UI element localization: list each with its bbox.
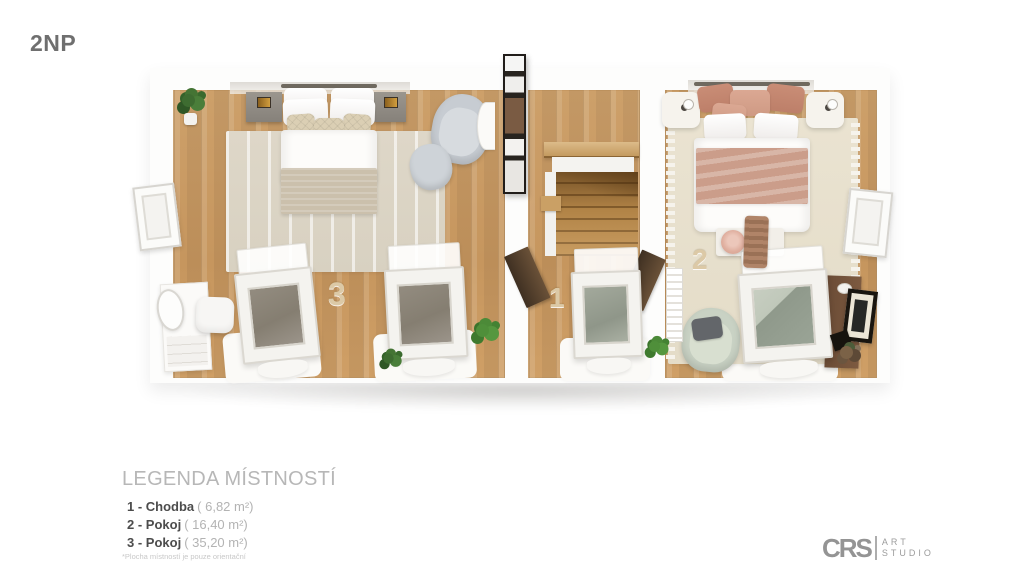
room-number-3: 3 bbox=[328, 276, 346, 313]
legend-item-area: ( 6,82 m²) bbox=[197, 499, 253, 514]
floorplan-slide: { "page": { "floor_label": "2NP" }, "flo… bbox=[0, 0, 1024, 576]
lamp-icon bbox=[827, 99, 838, 110]
lamp-icon bbox=[257, 97, 271, 108]
window-frame bbox=[571, 269, 644, 358]
legend-item-label: 1 - Chodba bbox=[127, 499, 194, 514]
legend-item: 3 - Pokoj( 35,20 m²) bbox=[127, 534, 336, 552]
plant bbox=[476, 324, 489, 337]
window-sill bbox=[586, 357, 631, 375]
legend-item-label: 2 - Pokoj bbox=[127, 517, 181, 532]
stair-winder bbox=[556, 172, 638, 197]
radiator bbox=[666, 268, 683, 342]
room-number-1: 1 bbox=[549, 282, 565, 314]
nightstand-right-room3 bbox=[374, 92, 406, 122]
logo-divider bbox=[875, 536, 877, 560]
legend-footnote: *Plocha místností je pouze orientační bbox=[122, 552, 246, 561]
double-bed-room3 bbox=[281, 84, 377, 216]
dried-plant bbox=[840, 346, 853, 359]
window-frame bbox=[737, 268, 833, 364]
lamp-icon bbox=[683, 99, 694, 110]
studio-logo: CRS ART STUDIO bbox=[822, 535, 934, 561]
plant-leaves-icon bbox=[840, 346, 853, 359]
gable-window-right bbox=[843, 188, 894, 258]
desk-drawers bbox=[166, 335, 208, 366]
legend-item-area: ( 35,20 m²) bbox=[184, 535, 248, 550]
pillow bbox=[703, 113, 746, 141]
window-glass bbox=[247, 282, 306, 349]
plant bbox=[648, 340, 661, 353]
stair-stringer bbox=[545, 172, 556, 256]
plant-pot bbox=[184, 113, 197, 125]
stair-landing-wall bbox=[552, 157, 634, 172]
legend-title: LEGENDA MÍSTNOSTÍ bbox=[122, 468, 336, 491]
window-frame bbox=[384, 266, 469, 361]
page-title: 2NP bbox=[30, 30, 76, 57]
legend-items: 1 - Chodba( 6,82 m²) 2 - Pokoj( 16,40 m²… bbox=[122, 498, 336, 552]
double-bed-room2 bbox=[694, 82, 810, 232]
roof-window bbox=[383, 242, 470, 378]
roof-window bbox=[570, 247, 644, 375]
legend-item: 2 - Pokoj( 16,40 m²) bbox=[127, 516, 336, 534]
plan-drop-shadow bbox=[168, 384, 872, 412]
lamp-icon bbox=[384, 97, 398, 108]
plant-leaves-icon bbox=[649, 341, 660, 352]
legend-item-label: 3 - Pokoj bbox=[127, 535, 181, 550]
legend-item-area: ( 16,40 m²) bbox=[184, 517, 248, 532]
window-sill bbox=[403, 357, 455, 377]
logo-name: ART STUDIO bbox=[882, 537, 934, 559]
window-glass bbox=[751, 284, 816, 349]
window-glass bbox=[396, 281, 453, 346]
blanket bbox=[281, 168, 377, 214]
throw-blanket bbox=[743, 216, 769, 269]
blanket bbox=[696, 148, 808, 204]
plant bbox=[182, 94, 195, 119]
stair-handrail bbox=[544, 142, 639, 158]
plant-leaves-icon bbox=[383, 353, 393, 363]
wall-console bbox=[477, 102, 495, 150]
pouf bbox=[721, 230, 745, 254]
logo-name-line1: ART bbox=[882, 537, 934, 548]
room-number-2: 2 bbox=[692, 244, 708, 276]
nightstand-right-room2 bbox=[806, 92, 844, 128]
legend-item: 1 - Chodba( 6,82 m²) bbox=[127, 498, 336, 516]
window-pane bbox=[852, 198, 883, 246]
legend: LEGENDA MÍSTNOSTÍ 1 - Chodba( 6,82 m²) 2… bbox=[122, 468, 336, 552]
plant-leaves-icon bbox=[476, 324, 489, 337]
window-pane bbox=[141, 193, 171, 240]
stair-newel bbox=[541, 196, 561, 211]
nightstand-left-room3 bbox=[246, 92, 282, 122]
shelf-unit bbox=[503, 54, 526, 194]
staircase bbox=[556, 172, 638, 256]
roof-window bbox=[231, 242, 322, 381]
logo-initials: CRS bbox=[822, 535, 871, 561]
pillow bbox=[691, 316, 724, 342]
floor-plan: 3 1 bbox=[150, 68, 890, 383]
picture bbox=[852, 299, 869, 332]
plant bbox=[382, 352, 395, 365]
gable-window-left bbox=[132, 183, 181, 252]
window-frame bbox=[234, 266, 321, 365]
stool bbox=[195, 296, 234, 333]
logo-name-line2: STUDIO bbox=[882, 548, 934, 559]
window-glass bbox=[582, 284, 631, 344]
plant-leaves-icon bbox=[182, 94, 195, 107]
pillow bbox=[764, 83, 805, 114]
